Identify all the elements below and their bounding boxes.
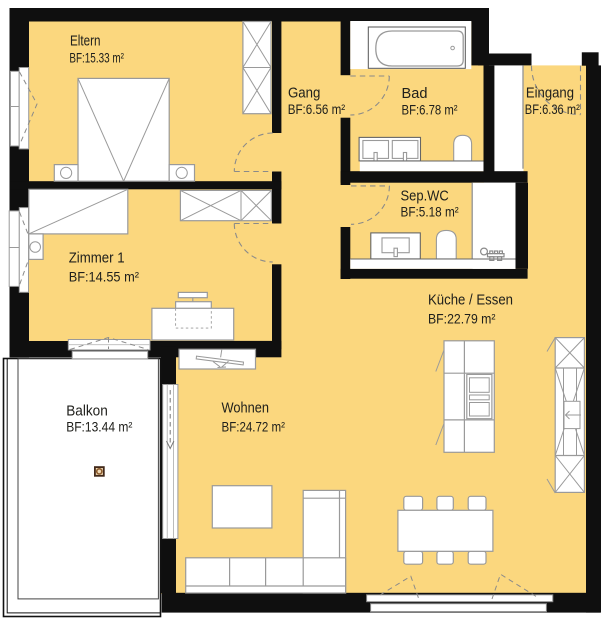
svg-text:Balkon: Balkon — [66, 403, 108, 420]
svg-text:Zimmer 1: Zimmer 1 — [69, 249, 125, 266]
svg-text:BF:6.78 m²: BF:6.78 m² — [402, 103, 458, 118]
svg-text:Bad: Bad — [402, 85, 428, 102]
svg-text:BF:13.44 m²: BF:13.44 m² — [66, 420, 133, 435]
svg-text:Wohnen: Wohnen — [222, 399, 270, 416]
svg-text:Gang: Gang — [288, 85, 320, 102]
svg-text:Eltern: Eltern — [70, 33, 101, 50]
svg-text:BF:5.18 m²: BF:5.18 m² — [401, 205, 460, 220]
svg-text:BF:6.56 m²: BF:6.56 m² — [288, 102, 346, 117]
svg-text:BF:15.33 m²: BF:15.33 m² — [69, 51, 124, 66]
svg-text:BF:14.55 m²: BF:14.55 m² — [69, 269, 140, 284]
svg-text:BF:22.79 m²: BF:22.79 m² — [428, 312, 496, 327]
svg-text:Sep.WC: Sep.WC — [401, 187, 449, 204]
svg-text:Küche / Essen: Küche / Essen — [428, 292, 513, 309]
svg-text:Eingang: Eingang — [526, 84, 574, 101]
svg-text:BF:6.36 m²: BF:6.36 m² — [525, 102, 580, 117]
svg-text:BF:24.72 m²: BF:24.72 m² — [222, 419, 286, 434]
